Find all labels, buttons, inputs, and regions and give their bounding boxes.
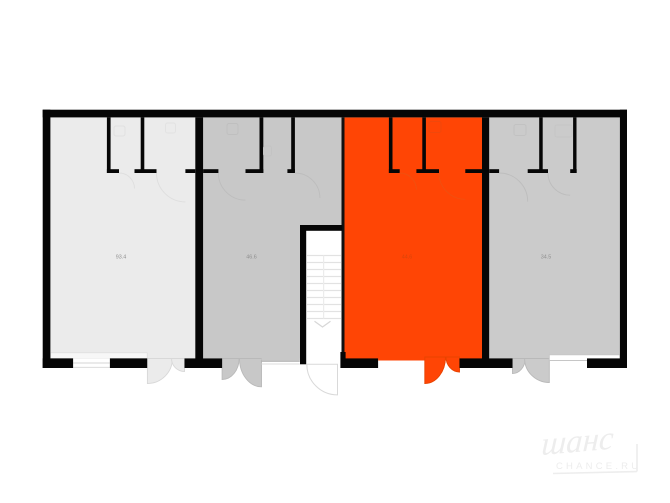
svg-text:46.6: 46.6: [246, 255, 257, 261]
svg-text:шанс: шанс: [541, 420, 615, 463]
svg-text:93.4: 93.4: [116, 255, 127, 261]
svg-text:34.5: 34.5: [541, 255, 552, 261]
svg-text:CHANCE.RU: CHANCE.RU: [556, 461, 641, 472]
svg-text:44.6: 44.6: [402, 255, 413, 261]
